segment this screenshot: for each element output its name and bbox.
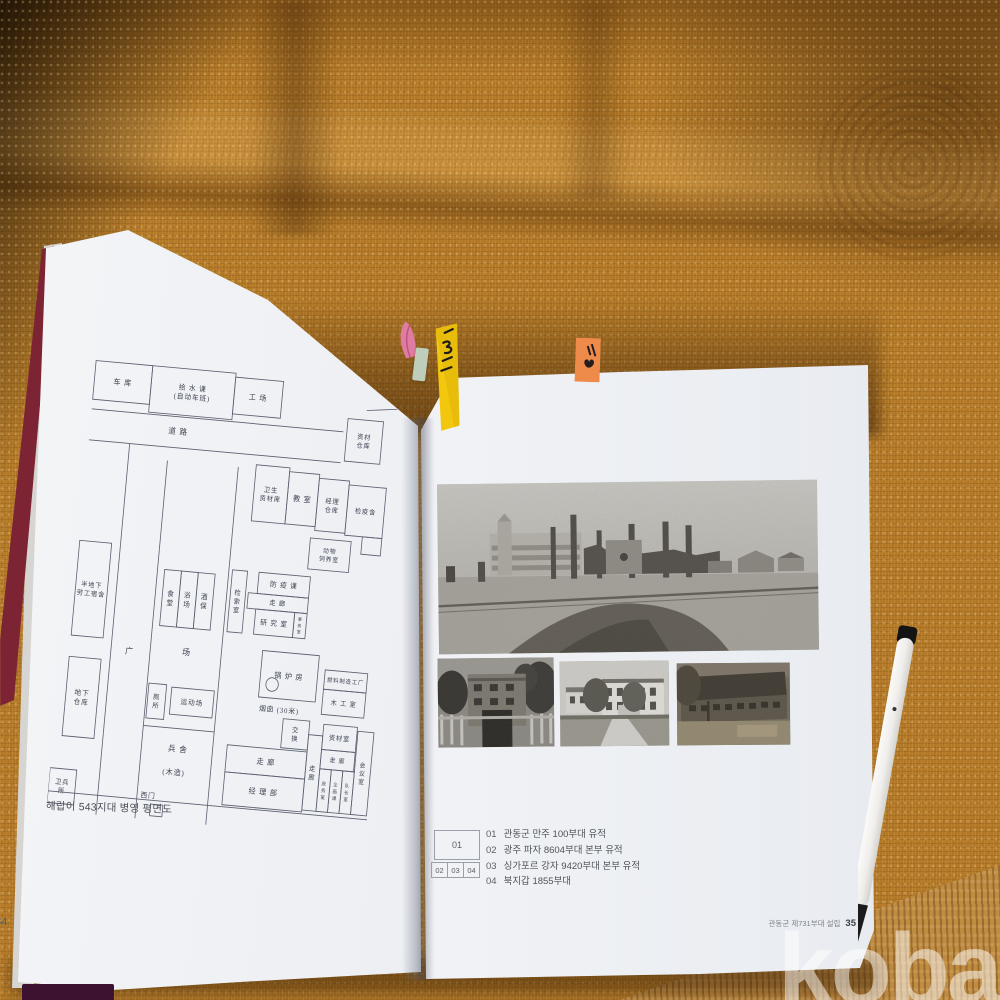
svg-text:检索室: 检索室 xyxy=(233,588,243,615)
page-number-left: 34 xyxy=(0,916,7,928)
caption-line: 03 싱가포르 강자 9420부대 본부 유적 xyxy=(486,859,706,875)
svg-text:走廊: 走廊 xyxy=(308,764,317,782)
svg-text:道 路: 道 路 xyxy=(168,425,189,437)
caption-text: 싱가포르 강자 9420부대 본부 유적 xyxy=(504,859,641,875)
caption-number: 01 xyxy=(486,827,497,843)
photo-caption-list: 01 관동군 만주 100부대 유적 02 광주 파자 8604부대 본부 유적… xyxy=(486,827,706,890)
svg-text:交换: 交换 xyxy=(291,725,300,744)
svg-text:走 廊: 走 廊 xyxy=(269,598,286,609)
svg-text:动物饲养室: 动物饲养室 xyxy=(319,546,340,564)
svg-text:场: 场 xyxy=(182,648,192,658)
svg-text:研 究 室: 研 究 室 xyxy=(260,617,288,629)
fabric-medallion-pattern xyxy=(818,70,1000,260)
svg-text:车 库: 车 库 xyxy=(113,376,133,388)
dark-building-image xyxy=(677,663,791,746)
svg-text:烟囱 (30米): 烟囱 (30米) xyxy=(259,703,300,716)
caption-number: 04 xyxy=(486,874,497,890)
svg-text:厕所: 厕所 xyxy=(152,693,161,711)
svg-text:会议室: 会议室 xyxy=(358,761,367,786)
caption-number: 02 xyxy=(486,843,497,859)
floor-plan-figure: 车 库给 水 课(自动车班)工 场资材仓库卫生资材库教 室经理仓库检疫舍动物饲养… xyxy=(46,352,409,841)
svg-text:资材仓库: 资材仓库 xyxy=(356,432,372,451)
bookmark-tab-yellow xyxy=(428,322,464,440)
fabric-wrinkle xyxy=(250,0,340,235)
svg-text:木 工 室: 木 工 室 xyxy=(330,698,357,710)
svg-text:地下仓库: 地下仓库 xyxy=(73,687,90,707)
photo-scene: 车 库给 水 课(自动车班)工 场资材仓库卫生资材库教 室经理仓库检疫舍动物饲养… xyxy=(0,0,1000,1000)
svg-text:防 疫 课: 防 疫 课 xyxy=(270,579,298,591)
floor-plan-svg: 车 库给 水 课(自动车班)工 场资材仓库卫生资材库教 室经理仓库检疫舍动物饲养… xyxy=(46,352,409,841)
photo-03-headquarters xyxy=(560,661,670,747)
photo-02-building xyxy=(438,657,555,747)
photo-04-barracks xyxy=(677,663,791,746)
colonial-building-image xyxy=(438,657,555,747)
white-building-image xyxy=(560,661,670,747)
svg-text:半地下劳工宿舍: 半地下劳工宿舍 xyxy=(76,579,106,600)
caption-text: 광주 파자 8604부대 본부 유적 xyxy=(504,843,623,859)
book-gutter xyxy=(402,418,434,980)
svg-text:事务室: 事务室 xyxy=(297,615,304,634)
caption-line: 01 관동군 만주 100부대 유적 xyxy=(486,827,706,843)
legend-cell-04: 04 xyxy=(464,862,480,878)
svg-text:经理仓库: 经理仓库 xyxy=(324,496,340,515)
svg-text:经 理 部: 经 理 部 xyxy=(248,785,278,798)
dark-object-corner xyxy=(22,984,114,1000)
svg-text:企画课: 企画课 xyxy=(332,781,339,802)
photo-01-ruins xyxy=(437,480,819,655)
svg-text:给 水 课(自动车班): 给 水 课(自动车班) xyxy=(173,382,211,404)
svg-text:走 廊: 走 廊 xyxy=(329,756,345,766)
caption-text: 북지갑 1855부대 xyxy=(504,874,571,890)
svg-text:酒保: 酒保 xyxy=(200,593,209,611)
fabric-wrinkle xyxy=(560,0,630,200)
svg-text:燃料制造工厂: 燃料制造工厂 xyxy=(327,676,365,688)
svg-text:资材室: 资材室 xyxy=(329,733,351,744)
ruins-photo-image xyxy=(437,480,819,655)
caption-line: 04 북지갑 1855부대 xyxy=(486,874,706,890)
svg-text:队长室: 队长室 xyxy=(343,782,350,803)
photo-legend-large-box: 01 xyxy=(434,830,480,860)
svg-text:浴场: 浴场 xyxy=(183,590,192,609)
svg-text:走 廊: 走 廊 xyxy=(256,755,276,767)
svg-text:检疫舍: 检疫舍 xyxy=(355,506,377,517)
legend-cell-03: 03 xyxy=(448,862,464,878)
svg-text:(木造): (木造) xyxy=(162,766,185,778)
svg-text:广: 广 xyxy=(125,645,135,656)
caption-line: 02 광주 파자 8604부대 본부 유적 xyxy=(486,843,706,859)
svg-text:工 场: 工 场 xyxy=(248,392,267,403)
svg-text:食堂: 食堂 xyxy=(166,589,175,608)
photo-legend-small-row: 02 03 04 xyxy=(431,862,480,878)
legend-cell-02: 02 xyxy=(431,862,448,878)
svg-text:运动场: 运动场 xyxy=(180,697,203,708)
pen-barrel xyxy=(858,637,915,908)
svg-text:庶务室: 庶务室 xyxy=(320,780,327,801)
svg-text:卫生资材库: 卫生资材库 xyxy=(259,484,282,504)
caption-number: 03 xyxy=(486,859,497,875)
svg-text:教 室: 教 室 xyxy=(293,493,313,505)
site-watermark: kobay xyxy=(778,912,1000,1000)
svg-text:锅 炉 房: 锅 炉 房 xyxy=(274,669,304,682)
bookmark-tab-orange xyxy=(574,338,601,388)
svg-text:兵 舍: 兵 舍 xyxy=(168,743,189,755)
svg-text:西门: 西门 xyxy=(140,790,156,801)
caption-text: 관동군 만주 100부대 유적 xyxy=(504,827,606,843)
